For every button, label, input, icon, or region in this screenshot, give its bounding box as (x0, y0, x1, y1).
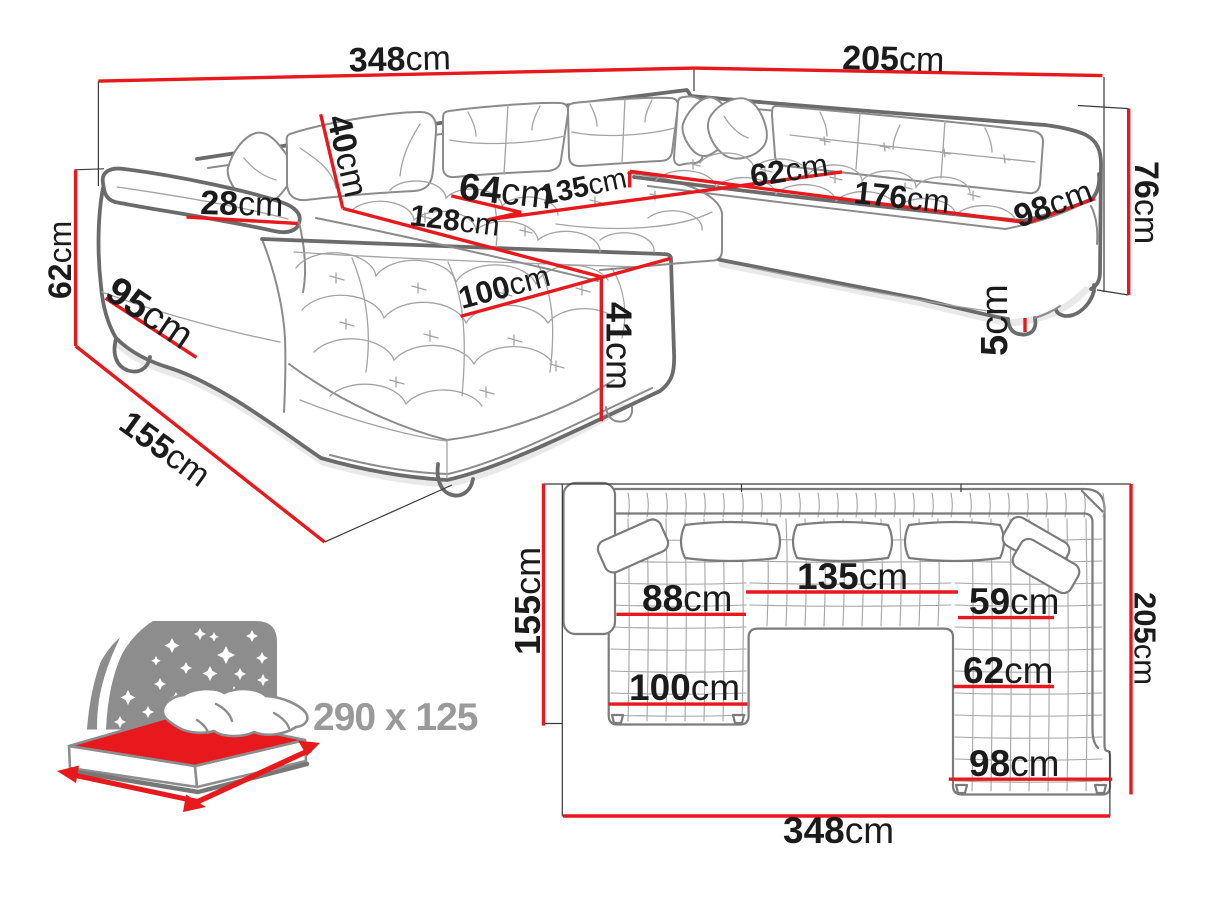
svg-text:290 x 125: 290 x 125 (313, 696, 478, 739)
svg-text:88cm: 88cm (642, 578, 732, 619)
svg-text:155cm: 155cm (507, 547, 548, 655)
svg-text:62cm: 62cm (42, 221, 78, 299)
svg-text:59cm: 59cm (969, 581, 1059, 622)
svg-text:348cm: 348cm (783, 810, 894, 851)
svg-text:98cm: 98cm (969, 743, 1059, 784)
svg-text:135cm: 135cm (797, 556, 908, 597)
svg-text:76cm: 76cm (1127, 161, 1165, 244)
svg-text:5cm: 5cm (974, 284, 1016, 356)
svg-text:205cm: 205cm (842, 39, 945, 79)
svg-text:100cm: 100cm (629, 667, 740, 708)
svg-text:28cm: 28cm (200, 184, 284, 224)
svg-text:41cm: 41cm (599, 302, 640, 390)
svg-text:62cm: 62cm (963, 650, 1053, 691)
svg-text:348cm: 348cm (348, 39, 451, 79)
svg-text:205cm: 205cm (1128, 592, 1163, 685)
